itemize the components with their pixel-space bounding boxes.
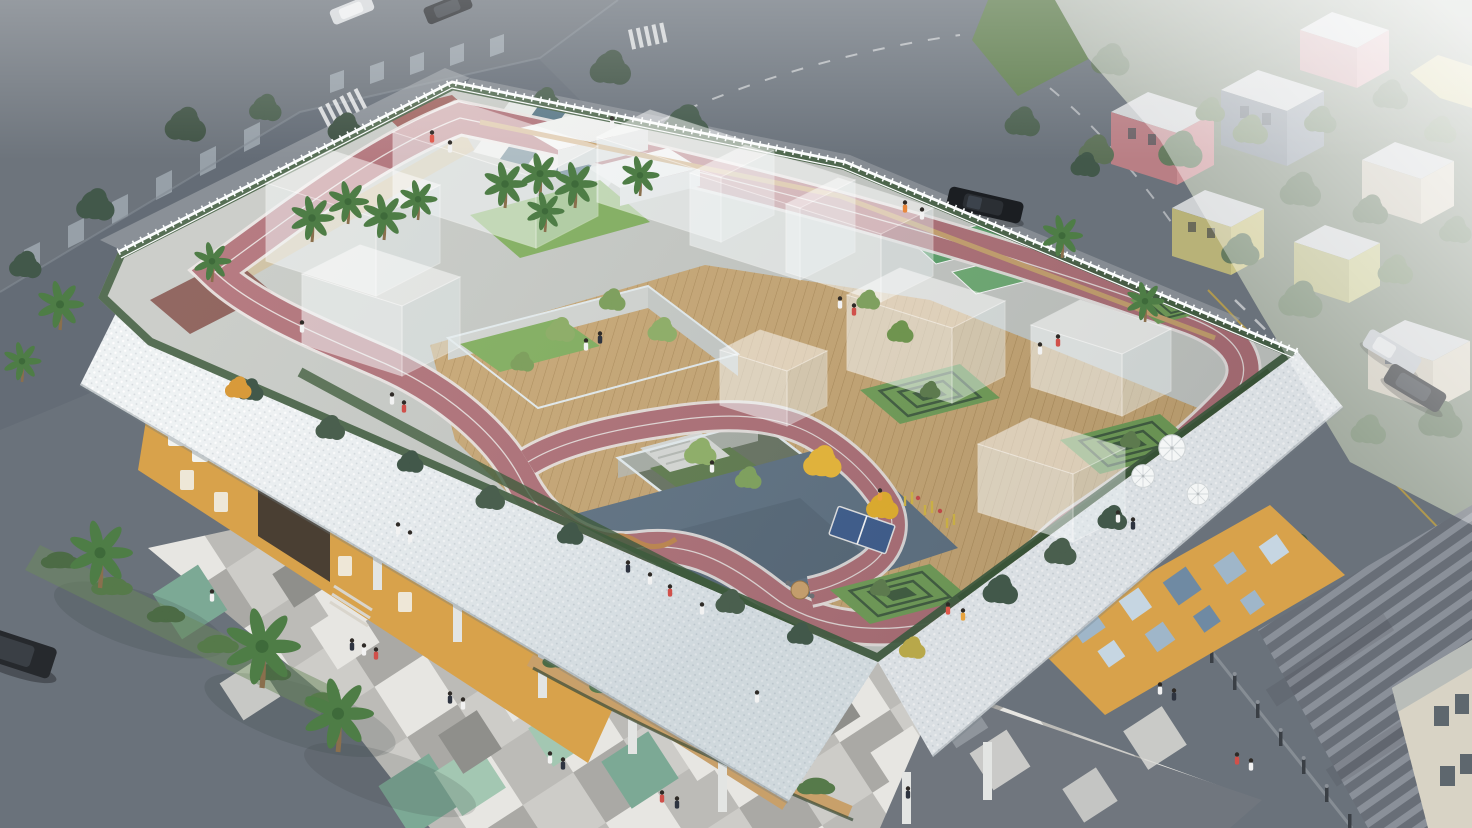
person [1158,682,1162,694]
person [675,796,679,808]
person [390,392,394,404]
person [961,608,965,620]
person [396,522,400,534]
person [1249,758,1253,770]
person [350,638,354,650]
haze-overlay [0,0,1472,160]
person [1131,517,1135,529]
person [1172,688,1176,700]
person [903,200,907,212]
person [461,697,465,709]
aerial-rendering [0,0,1472,828]
person [648,572,652,584]
person [1235,752,1239,764]
person [755,690,759,702]
person [408,530,412,542]
person [584,338,588,350]
person [710,460,714,472]
person [402,400,406,412]
person [700,602,704,614]
person [838,296,842,308]
person [946,602,950,614]
person [1038,342,1042,354]
person [598,331,602,343]
person [210,589,214,601]
person [300,320,304,332]
person [920,207,924,219]
person [548,751,552,763]
person [374,647,378,659]
person [852,303,856,315]
person [448,691,452,703]
person [906,786,910,798]
person [668,584,672,596]
person [362,643,366,655]
person [878,488,882,500]
person [1116,510,1120,522]
person [660,790,664,802]
person [1056,334,1060,346]
person [626,560,630,572]
person [561,757,565,769]
